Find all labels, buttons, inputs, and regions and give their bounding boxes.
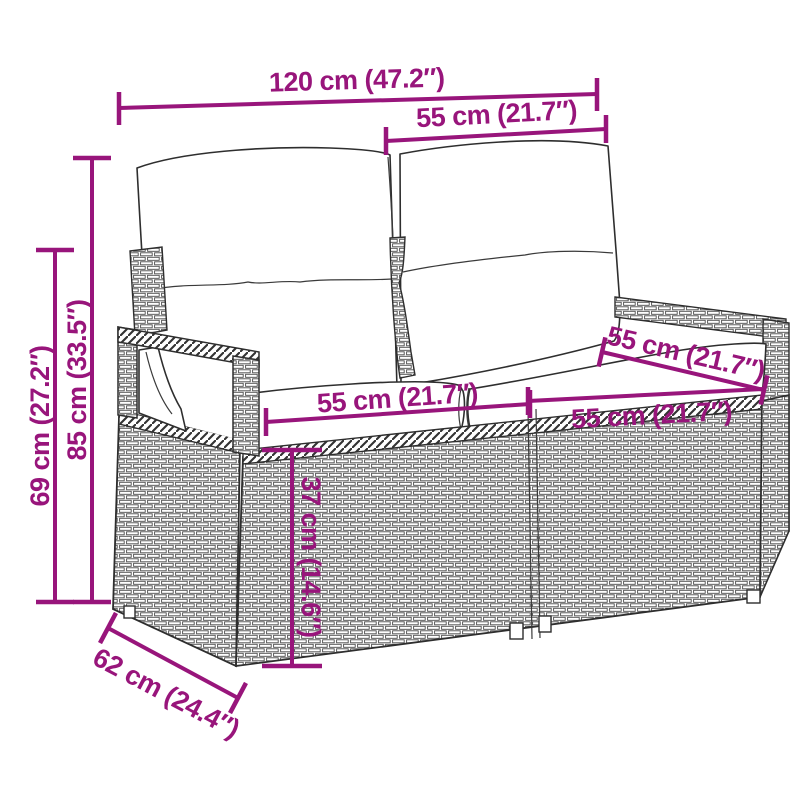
dimension-label-total-width: 120 cm (47.2″) bbox=[269, 62, 445, 97]
sofa-foot bbox=[539, 616, 551, 632]
sofa-foot bbox=[124, 606, 135, 618]
base-right-side-wicker bbox=[760, 395, 789, 597]
base-left-side bbox=[113, 410, 240, 666]
dimension-diagram: 120 cm (47.2″) 55 cm (21.7″) 85 cm (33.5… bbox=[0, 0, 800, 800]
dim-total-height: 85 cm (33.5″) bbox=[62, 158, 111, 602]
back-cushion-right bbox=[400, 141, 620, 386]
tick bbox=[230, 683, 246, 713]
dimension-label-arm-height: 69 cm (27.2″) bbox=[25, 345, 55, 506]
left-back-post-wicker bbox=[130, 247, 167, 336]
tick bbox=[100, 613, 116, 643]
sofa-foot bbox=[510, 623, 523, 639]
dimension-label-seat-height: 37 cm (14.6″) bbox=[296, 476, 326, 637]
base-left-side-wicker bbox=[113, 417, 240, 666]
sofa-dimension-drawing: 120 cm (47.2″) 55 cm (21.7″) 85 cm (33.5… bbox=[0, 0, 800, 800]
armrest-front-post-wicker bbox=[233, 356, 259, 456]
back-cushion-right-body bbox=[400, 141, 620, 386]
dimension-label-total-height: 85 cm (33.5″) bbox=[62, 299, 92, 460]
sofa-foot bbox=[747, 590, 760, 603]
